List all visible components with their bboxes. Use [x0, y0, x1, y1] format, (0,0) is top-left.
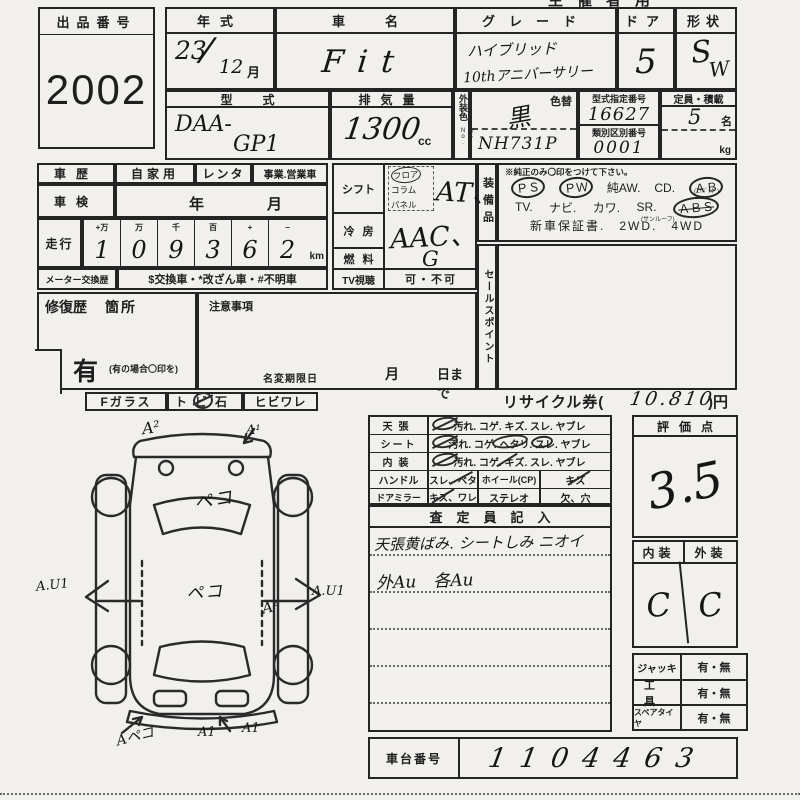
rename-deadline-label: 名変期限日 [263, 370, 318, 385]
grade-label: グレード [457, 9, 615, 34]
recycle-label: リサイクル券( [503, 391, 604, 412]
year-label: 年式 [167, 9, 273, 34]
exterior-color-strip: 外装色 カラーNo. [453, 90, 470, 160]
equip-row3: 新車保証書. 2WD. 4WD [505, 217, 729, 235]
repair-yes: 有 [73, 352, 98, 388]
capacity-kg-unit: kg [719, 145, 731, 156]
grade-cell: グレード ハイブリッド 10thアニバーサリー [455, 7, 617, 90]
damage-mark-top-left: A² [141, 417, 161, 438]
rename-day: 日まで [437, 364, 475, 402]
type-designation-label: 型式指定番号 [580, 92, 658, 104]
capacity-unit: 名 [721, 113, 732, 129]
sales-point-label-strip: セールスポイント [477, 244, 497, 390]
tool-label: 工具 [634, 681, 682, 704]
exhibit-number: 2002 [40, 35, 153, 145]
mileage-col-0: +万 [84, 220, 121, 234]
door-value: 5 [619, 34, 673, 89]
interior-grade-label: 内装 [634, 542, 685, 562]
damage-mark-rear-door: A² [260, 596, 280, 617]
exhibit-label: 出品番号 [40, 9, 153, 35]
equip-navi: ナビ. [549, 199, 576, 216]
inspector-line2: 外Au 各Au [376, 565, 474, 593]
inspection-year: 年 [189, 193, 204, 214]
inspector-box: 査定員記入 天張黄ばみ. シートしみ ニオイ 外Au 各Au [368, 505, 612, 732]
mileage-col-1: 万 [121, 220, 158, 234]
displacement-unit: cc [418, 134, 431, 148]
caution-box: 注意事項 名変期限日 月 日まで [197, 292, 477, 390]
type-designation-cell: 型式指定番号 16627 類別区別番号 0001 [578, 90, 660, 160]
int-ext-box: 内装 外装 C C [632, 540, 738, 648]
mileage-unit: km [310, 251, 324, 262]
repair-label: 修復歴 [45, 297, 87, 317]
grade-line1: ハイブリッド [467, 37, 557, 61]
equip-ab-sub: (ｴｱﾊﾞｯｸﾞ) [694, 186, 719, 195]
model-code-cell: 型式 DAA- GP1 [165, 90, 330, 160]
car-history-rental: レンタ [195, 163, 252, 184]
f-glass-label: Fガラス [85, 392, 167, 411]
year-cell: 年式 23 / 12 月 [165, 7, 275, 90]
mileage-col-3: 百 [195, 220, 232, 234]
spare-tire-label: スペアタイヤ [634, 706, 682, 729]
seat-label: シート [370, 435, 429, 452]
capacity-cell: 定員・積載 5 名 kg [660, 90, 737, 160]
jack-value: 有・無 [682, 655, 746, 679]
inspection-value-cell: 年 月 [115, 184, 328, 218]
equipment-note: ※純正のみ〇印をつけて下さい。 [505, 166, 729, 178]
mirror-label: ドアミラー [370, 489, 429, 505]
displacement-value: 1300 [342, 112, 423, 147]
tools-box: ジャッキ 有・無 工具 有・無 スペアタイヤ 有・無 [632, 653, 748, 731]
sales-point-box [497, 244, 737, 390]
shift-opt-panel: パネル [391, 198, 431, 213]
handle-label: ハンドル [370, 471, 429, 488]
score-box: 評価点 3.5 [632, 415, 738, 538]
repair-note: (有の場合〇印を) [109, 362, 178, 375]
mileage-digit-0: 1 [84, 234, 121, 266]
exterior-grade-label: 外装 [685, 542, 736, 562]
mileage-col-5: − [269, 220, 306, 234]
repair-location-label: 箇所 [105, 297, 137, 317]
chassis-label: 車台番号 [370, 739, 460, 777]
condition-table: 天張 汚れ. コゲ. キズ. スレ. ヤブレ シート 汚れ. コゲ. ヘタリ. … [368, 415, 612, 505]
exterior-color-cell: 色替 黒 NH731P [470, 90, 578, 160]
inspection-month: 月 [267, 193, 282, 214]
displacement-label: 排気量 [332, 92, 451, 108]
car-name-value: Fit [274, 34, 456, 89]
mileage-grid: +万 万 千 百 + − 1 0 9 3 6 2 km [82, 218, 328, 268]
equip-ps: ＰＳ [510, 176, 546, 200]
shift-label: シフト [334, 165, 383, 212]
repair-box-notch [35, 349, 62, 394]
shape-cell: 形状 S W [675, 7, 737, 90]
exterior-grade-value: C [680, 561, 742, 649]
model-code-value: GP1 [233, 132, 279, 157]
equip-sr: SR. [637, 200, 657, 214]
rename-month: 月 [385, 364, 399, 384]
equip-tv: TV. [515, 200, 533, 214]
meter-history-label: メーター交換歴 [37, 268, 117, 290]
mileage-digit-4: 6 [232, 234, 269, 266]
shift-opt-column: コラム [391, 183, 431, 198]
car-history-commercial: 事業.営業車 [252, 163, 328, 184]
displacement-cell: 排気量 1300 cc [330, 90, 453, 160]
shift-opt-floor: フロア [390, 166, 421, 185]
tool-value: 有・無 [682, 681, 746, 704]
wheel-label: ホイール(CP) [479, 471, 541, 488]
shape-label: 形状 [677, 9, 735, 34]
spec-table: シフト フロア コラム パネル AT、 冷房 AAC、 燃料 G TV視聴 可・… [332, 163, 477, 290]
sales-point-label: セールスポイント [479, 246, 495, 388]
mileage-digit-5: 2 [269, 234, 306, 266]
exterior-color-label: 外装色 [458, 94, 467, 121]
car-name-label: 車名 [277, 9, 453, 34]
shape-value-w: W [708, 56, 731, 82]
equip-abs: ＡＢＳ [672, 195, 720, 220]
equipment-label: 装備品 [479, 165, 495, 240]
damage-mark-left: A.U1 [35, 576, 69, 594]
interior-label: 内装 [370, 453, 429, 470]
shift-label-cell: シフト [334, 165, 385, 214]
model-code-label: 型式 [167, 92, 328, 108]
inspector-header: 査定員記入 [370, 507, 610, 528]
chassis-value: 1104463 [457, 739, 740, 777]
month-value: 12 [219, 56, 243, 78]
damage-mark-bottom2: A1 [198, 725, 216, 740]
bottom-dotted-rule [0, 793, 800, 795]
spare-tire-value: 有・無 [682, 706, 746, 729]
inspection-label: 車検 [37, 184, 115, 218]
tv-label: TV視聴 [334, 270, 383, 288]
door-cell: ドア 5 [617, 7, 675, 90]
mileage-digit-1: 0 [121, 234, 158, 266]
grade-line2: 10thアニバーサリー [463, 61, 594, 88]
auction-sheet: 主催者用 出品番号 2002 年式 23 / 12 月 車名 Fit グレード … [0, 0, 800, 800]
meter-history-options: $交換車・*改ざん車・#不明車 [117, 268, 328, 290]
equip-sr-sub: (サンルーフ) [641, 214, 675, 223]
month-unit: 月 [247, 62, 260, 81]
car-history-label: 車歴 [37, 163, 115, 184]
type-designation-value: 16627 [580, 104, 658, 126]
mileage-col-2: 千 [158, 220, 195, 234]
mileage-col-4: + [232, 220, 269, 234]
ceiling-label: 天張 [370, 417, 429, 434]
crack-label: ヒビワレ [243, 392, 318, 411]
model-code-prefix: DAA- [175, 112, 232, 137]
equip-cd: CD. [654, 181, 675, 195]
caution-label: 注意事項 [209, 298, 253, 314]
ac-label: 冷房 [334, 214, 383, 247]
tv-options: 可・不可 [385, 270, 477, 288]
equip-kawa: カワ. [593, 199, 620, 216]
shift-options-cell: フロア コラム パネル [388, 166, 434, 211]
damage-mark-bottom3: A1 [242, 721, 260, 736]
mirror-value: キズ、ワレ [429, 489, 479, 505]
inspector-line1: 天張黄ばみ. シートしみ ニオイ [374, 530, 584, 555]
color-no-value: NH731P [478, 134, 558, 154]
chassis-box: 車台番号 1104463 [368, 737, 738, 779]
stereo-label: ステレオ [479, 489, 541, 505]
damage-mark-roof: ペコ [185, 576, 225, 604]
car-name-cell: 車名 Fit [275, 7, 455, 90]
capacity-value: 5 [688, 105, 701, 129]
mileage-digit-3: 3 [195, 234, 232, 266]
damage-mark-right: A.U1 [312, 584, 345, 599]
stereo-value: 欠、穴 [541, 489, 610, 505]
class-number-value: 0001 [580, 138, 658, 158]
equip-pw: ＰＷ [558, 176, 594, 200]
car-history-private: 自家用 [115, 163, 195, 184]
equip-aw: 純AW. [607, 179, 641, 196]
mileage-label: 走行 [37, 218, 82, 268]
damage-mark-top-right: A¹ [246, 423, 261, 438]
mileage-digit-2: 9 [158, 234, 195, 266]
class-number-label: 類別区別番号 [580, 126, 658, 138]
jack-label: ジャッキ [634, 655, 682, 679]
recycle-suffix: )円 [708, 391, 728, 412]
door-label: ドア [619, 9, 673, 34]
score-value: 3.5 [625, 427, 745, 544]
recycle-value: 10.810 [628, 388, 716, 410]
equipment-label-strip: 装備品 [477, 163, 497, 242]
equipment-box: ※純正のみ〇印をつけて下さい。 ＰＳ ＰＷ 純AW. CD. ＡＢ TV. ナビ… [497, 163, 737, 242]
exhibit-number-box: 出品番号 2002 [38, 7, 155, 149]
